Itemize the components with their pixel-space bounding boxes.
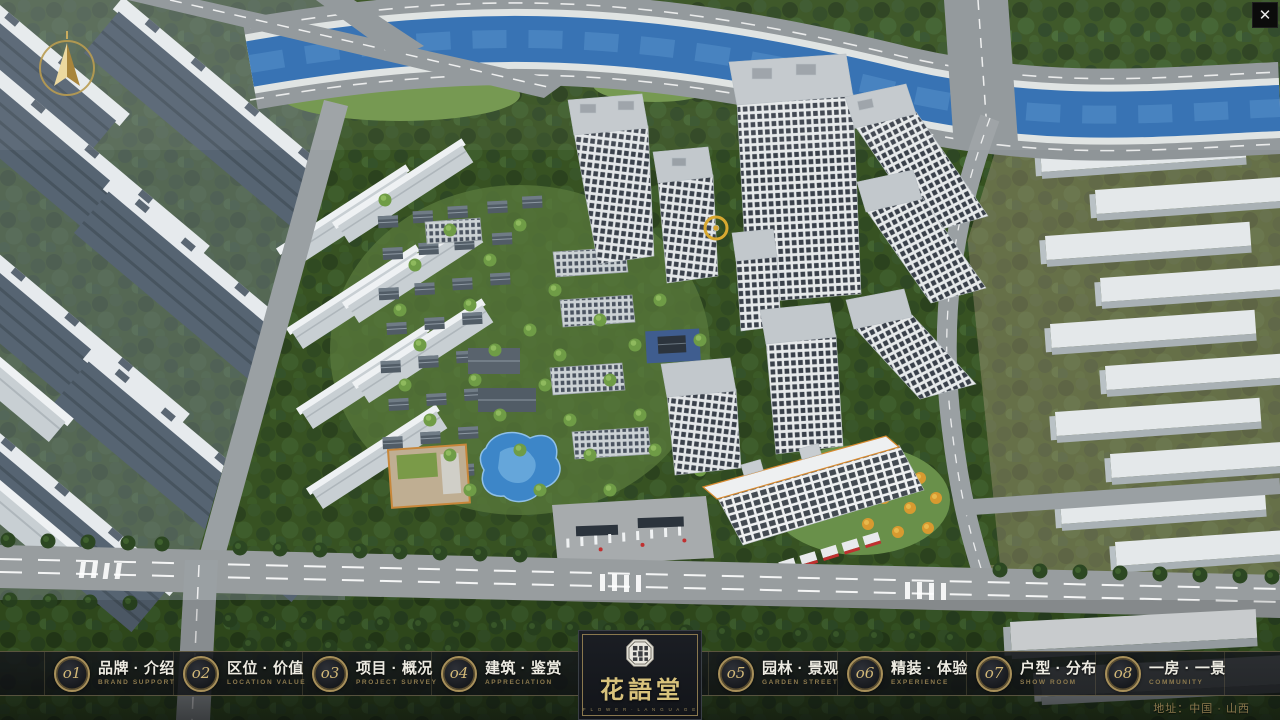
nav-badge: o5 (718, 656, 754, 692)
project-name: 花語堂 (596, 670, 684, 705)
nav-title: 一房 · 一景 (1149, 661, 1226, 676)
nav-title: 品牌 · 介绍 (98, 661, 176, 676)
nav-title: 户型 · 分布 (1020, 661, 1097, 676)
nav-title: 园林 · 景观 (762, 661, 839, 676)
nav-badge: o2 (183, 656, 219, 692)
seal-icon (625, 638, 655, 668)
nav-title: 精装 · 体验 (891, 661, 968, 676)
compass-north-icon (34, 30, 100, 100)
nav-title: 项目 · 概况 (356, 661, 438, 676)
nav-item-brand[interactable]: o1 品牌 · 介绍 BRAND SUPPORT (44, 652, 173, 695)
nav-badge: o1 (54, 656, 90, 692)
project-name-english: F L O W E R · L A N G U A G E (583, 707, 697, 712)
nav-badge: o7 (976, 656, 1012, 692)
nav-subtitle: SHOW ROOM (1020, 680, 1097, 687)
nav-badge: o8 (1105, 656, 1141, 692)
nav-item-views[interactable]: o8 一房 · 一景 COMMUNITY (1095, 652, 1224, 695)
nav-subtitle: APPRECIATION (485, 680, 562, 687)
nav-badge: o4 (441, 656, 477, 692)
nav-title: 区位 · 价值 (227, 661, 306, 676)
nav-item-floorplan[interactable]: o7 户型 · 分布 SHOW ROOM (966, 652, 1095, 695)
nav-title: 建筑 · 鉴赏 (485, 661, 562, 676)
nav-item-location[interactable]: o2 区位 · 价值 LOCATION VALUE (173, 652, 302, 695)
nav-item-garden[interactable]: o5 园林 · 景观 GARDEN STREET (708, 652, 837, 695)
nav-badge: o3 (312, 656, 348, 692)
project-logo-panel[interactable]: 花語堂 F L O W E R · L A N G U A G E (578, 630, 702, 720)
nav-item-architecture[interactable]: o4 建筑 · 鉴赏 APPRECIATION (431, 652, 560, 695)
nav-subtitle: PROJECT SURVEY (356, 680, 438, 687)
nav-item-interior[interactable]: o6 精装 · 体验 EXPERIENCE (837, 652, 966, 695)
nav-group-left: o1 品牌 · 介绍 BRAND SUPPORT o2 区位 · 价值 LOCA… (44, 652, 560, 695)
nav-group-right: o5 园林 · 景观 GARDEN STREET o6 精装 · 体验 EXPE… (708, 652, 1225, 695)
nav-subtitle: COMMUNITY (1149, 680, 1226, 687)
project-address: 地址：中国 · 山西 (1153, 700, 1250, 716)
nav-subtitle: LOCATION VALUE (227, 680, 306, 687)
nav-subtitle: EXPERIENCE (891, 680, 968, 687)
nav-item-project[interactable]: o3 项目 · 概况 PROJECT SURVEY (302, 652, 431, 695)
sales-presentation-screen: ✕ o1 品牌 · 介绍 BRAND SUPPORT o2 区位 · 价值 LO… (0, 0, 1280, 720)
masterplan-aerial-render (0, 0, 1280, 720)
nav-badge: o6 (847, 656, 883, 692)
nav-subtitle: BRAND SUPPORT (98, 680, 176, 687)
nav-subtitle: GARDEN STREET (762, 680, 839, 687)
close-button[interactable]: ✕ (1252, 2, 1278, 28)
